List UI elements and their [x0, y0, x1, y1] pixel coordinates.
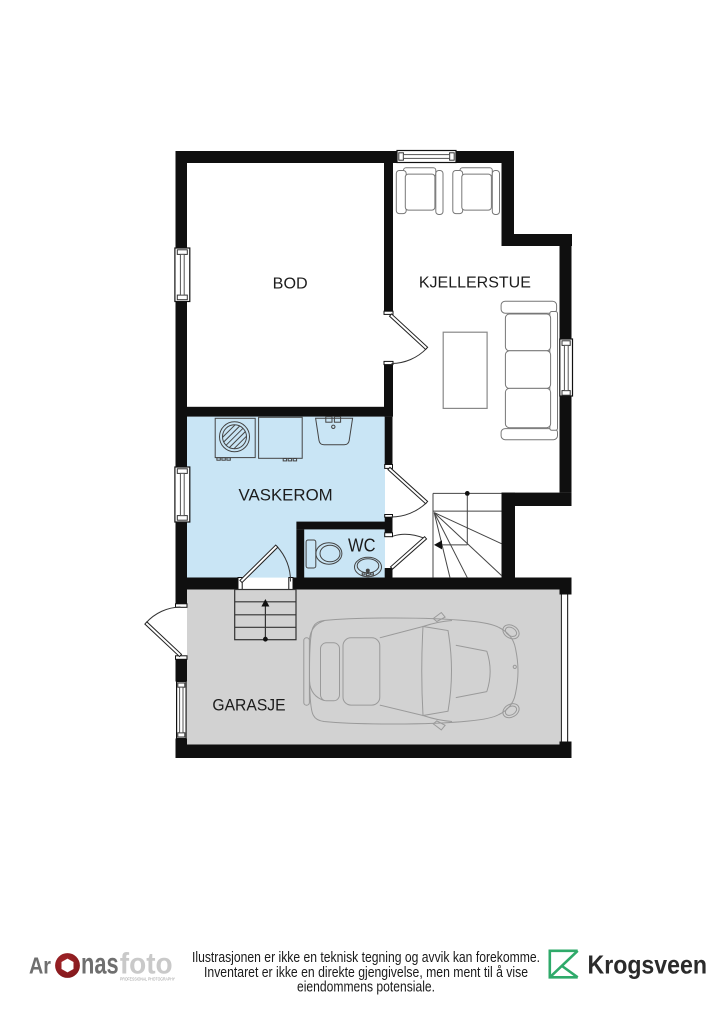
- svg-text:Krogsveen: Krogsveen: [588, 949, 708, 979]
- svg-text:Ar: Ar: [29, 953, 51, 979]
- svg-text:WC: WC: [348, 536, 376, 556]
- svg-text:nas: nas: [81, 948, 119, 981]
- svg-text:PROFESSIONAL PHOTOGRAPHY: PROFESSIONAL PHOTOGRAPHY: [120, 977, 175, 982]
- svg-text:BOD: BOD: [273, 276, 308, 293]
- svg-text:eiendommens potensiale.: eiendommens potensiale.: [297, 979, 435, 996]
- svg-text:GARASJE: GARASJE: [212, 696, 285, 715]
- svg-text:VASKEROM: VASKEROM: [239, 486, 333, 505]
- svg-text:KJELLERSTUE: KJELLERSTUE: [419, 275, 531, 292]
